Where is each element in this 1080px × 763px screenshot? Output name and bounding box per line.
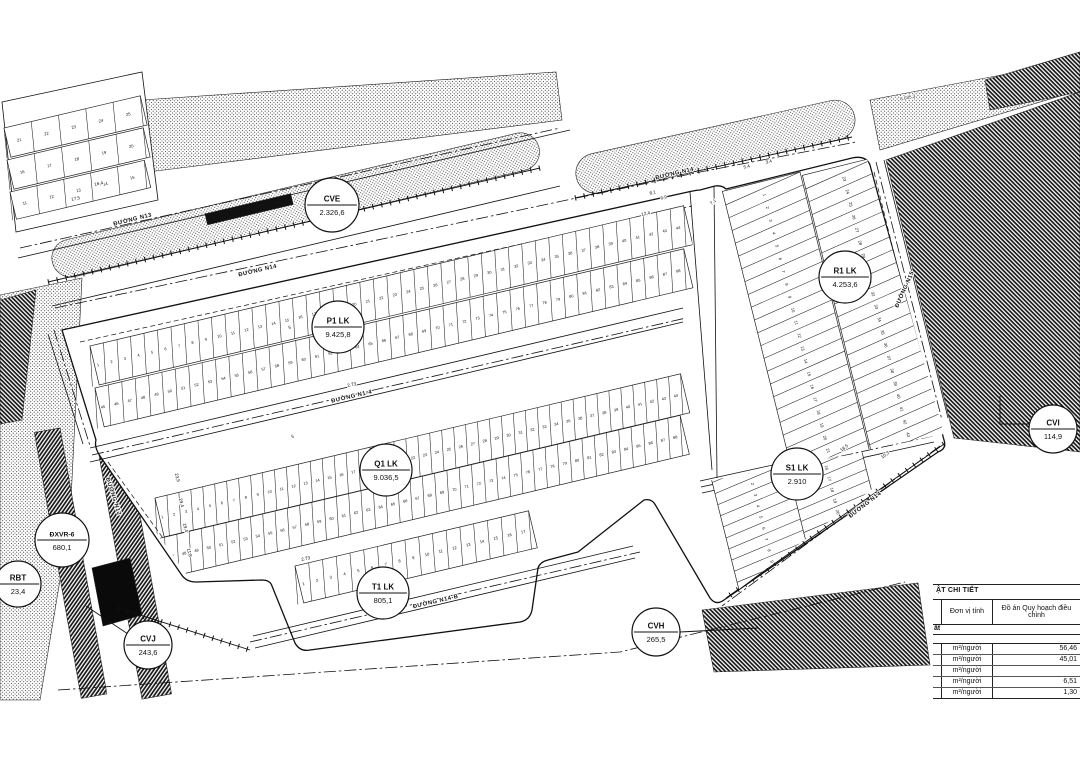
balloon-rbt: RBT23,4: [0, 561, 41, 607]
balloon-s1: S1 LK2.910: [771, 448, 823, 500]
unit-cell: m²/người: [942, 677, 993, 687]
balloon-value: 9.425,8: [325, 330, 350, 339]
rowlabel-cell: [933, 644, 942, 654]
table-blank-row: [933, 635, 1080, 644]
balloon-code: ĐXVR-6: [50, 532, 75, 539]
balloon-code: CVH: [648, 622, 665, 631]
balloon-code: RBT: [10, 574, 27, 583]
balloon-cvh: CVH265,5: [632, 608, 680, 656]
table-body: m²/người56,46m²/người45,01m²/ngườim²/ngư…: [933, 644, 1080, 698]
balloon-t1: T1 LK805,1: [357, 567, 409, 619]
balloon-value: 4.253,6: [832, 280, 857, 289]
balloon-value: 243,6: [139, 648, 158, 657]
balloon-r1: R1 LK4.253,6: [819, 251, 871, 303]
balloon-dxvr: ĐXVR-6680,1: [35, 513, 89, 567]
value-cell: 6,51: [993, 677, 1080, 687]
unit-cell: m²/người: [942, 644, 993, 654]
table-row: m²/người6,51: [933, 677, 1080, 688]
unit-cell: m²/người: [942, 666, 993, 676]
table-title: ẬT CHI TIẾT: [933, 585, 1080, 600]
balloon-cvj: CVJ243,6: [124, 621, 172, 669]
site-plan-map: 2122232425161718192011121314151234567891…: [0, 0, 1080, 763]
balloon-code: T1 LK: [372, 583, 394, 592]
balloon-cve: CVE2.326,6: [305, 178, 359, 232]
value-cell: 45,01: [993, 655, 1080, 665]
balloon-code: CVJ: [140, 635, 156, 644]
balloon-value: 2.326,6: [319, 208, 344, 217]
balloon-code: CVI: [1046, 419, 1059, 428]
balloon-p1: P1 LK9.425,8: [312, 301, 364, 353]
balloon-code: R1 LK: [833, 267, 856, 276]
balloon-value: 23,4: [11, 587, 26, 596]
table-row: m²/người: [933, 666, 1080, 677]
balloon-value: 114,9: [1044, 432, 1062, 441]
balloon-value: 680,1: [53, 543, 72, 552]
unit-cell: m²/người: [942, 688, 993, 698]
balloon-code: P1 LK: [327, 317, 350, 326]
table-col-unit: Đơn vị tính: [942, 600, 993, 624]
table-section-row: ất: [933, 625, 1080, 635]
balloon-value: 265,5: [647, 635, 666, 644]
drawing-canvas: 2122232425161718192011121314151234567891…: [0, 0, 1080, 763]
balloon-value: 805,1: [374, 596, 393, 605]
balloon-code: CVE: [324, 195, 341, 204]
value-cell: 1,30: [993, 688, 1080, 698]
balloon-code: S1 LK: [786, 464, 809, 473]
unit-cell: m²/người: [942, 655, 993, 665]
rowlabel-cell: [933, 666, 942, 676]
value-cell: 56,46: [993, 644, 1080, 654]
balloon-code: Q1 LK: [374, 460, 398, 469]
value-cell: [993, 666, 1080, 676]
balloon-cvi: CVI114,9: [1029, 405, 1077, 453]
table-col-rowlabel: [933, 600, 942, 624]
rowlabel-cell: [933, 688, 942, 698]
rowlabel-cell: [933, 677, 942, 687]
rowlabel-cell: [933, 655, 942, 665]
table-header-row: Đơn vị tính Đồ án Quy hoạch điều chỉnh: [933, 600, 1080, 625]
table-row: m²/người1,30: [933, 688, 1080, 698]
balloon-value: 2.910: [788, 477, 807, 486]
table-col-plan: Đồ án Quy hoạch điều chỉnh: [993, 600, 1080, 624]
balloon-q1: Q1 LK9.036,5: [360, 444, 412, 496]
land-use-table: ẬT CHI TIẾT Đơn vị tính Đồ án Quy hoạch …: [933, 584, 1080, 699]
table-row: m²/người56,46: [933, 644, 1080, 655]
table-row: m²/người45,01: [933, 655, 1080, 666]
balloon-value: 9.036,5: [373, 473, 398, 482]
